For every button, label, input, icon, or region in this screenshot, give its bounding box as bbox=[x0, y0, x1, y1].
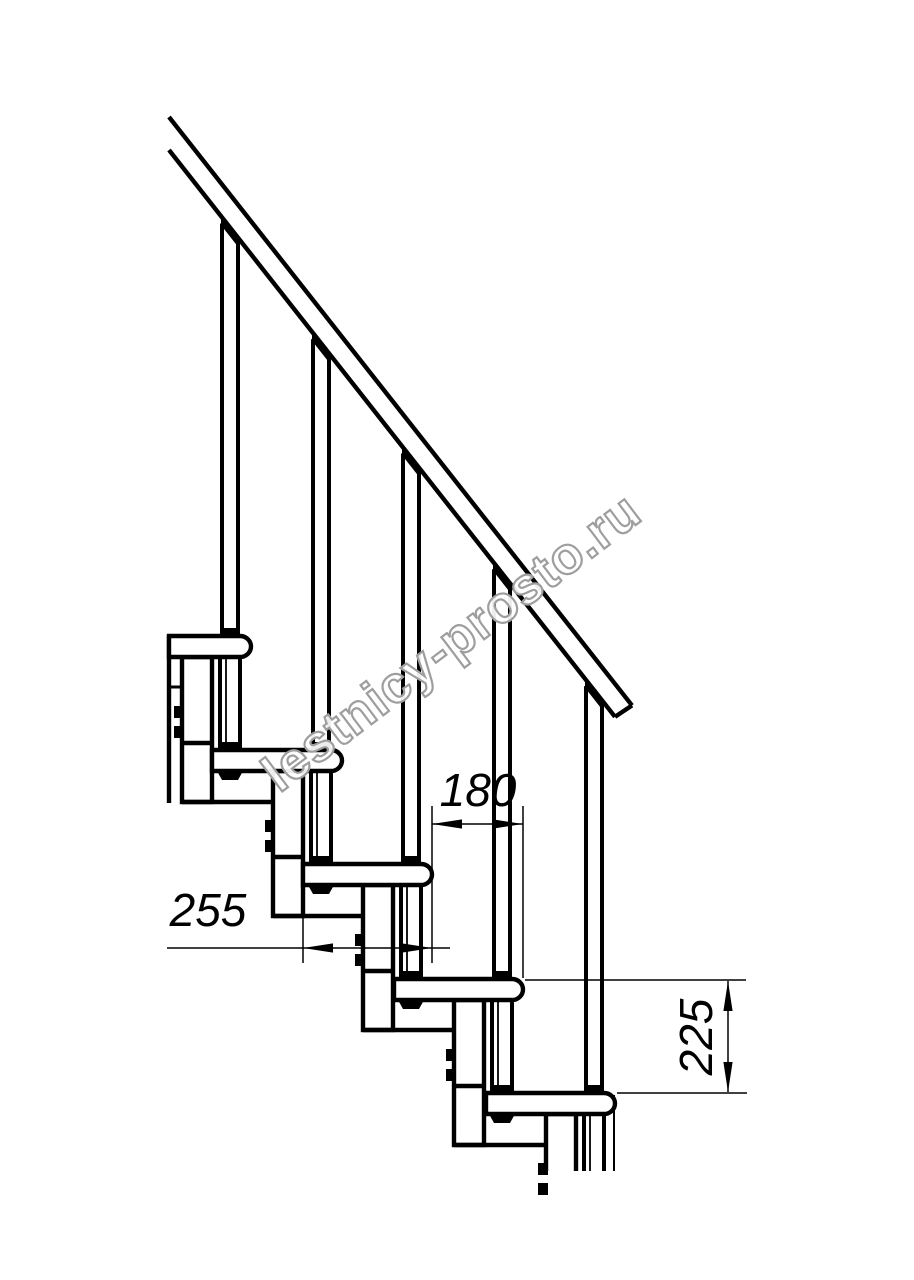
bolt bbox=[174, 726, 184, 738]
bolt bbox=[538, 1163, 548, 1175]
bolt bbox=[538, 1183, 548, 1195]
dim-arrow-down bbox=[723, 1062, 732, 1092]
bolt bbox=[355, 954, 365, 966]
dim-arrow-up bbox=[723, 981, 732, 1011]
rod bbox=[311, 771, 331, 864]
rod-foot bbox=[310, 856, 332, 866]
bolt bbox=[265, 840, 275, 852]
tread bbox=[486, 1093, 615, 1114]
baluster bbox=[222, 226, 238, 636]
tread bbox=[394, 979, 523, 1000]
bolt bbox=[355, 934, 365, 946]
rod-foot bbox=[491, 1085, 513, 1095]
rod-foot bbox=[219, 742, 241, 752]
staircase-drawing: 180255225lestnicy-prosto.ru bbox=[0, 0, 914, 1280]
dimension-label-180: 180 bbox=[440, 764, 517, 816]
baluster bbox=[586, 688, 602, 1093]
baluster-foot bbox=[583, 1085, 605, 1095]
bolt bbox=[446, 1049, 456, 1061]
dim-arrow-left bbox=[432, 819, 462, 828]
module-column bbox=[546, 1114, 576, 1171]
baluster bbox=[313, 341, 329, 750]
baluster-foot bbox=[219, 628, 241, 638]
dimension-label-255: 255 bbox=[169, 884, 247, 936]
rod bbox=[492, 1000, 512, 1093]
tread bbox=[169, 636, 251, 657]
drawing-page: 180255225lestnicy-prosto.ru bbox=[0, 0, 914, 1280]
rod bbox=[220, 657, 240, 750]
dim-arrow-left bbox=[303, 943, 333, 952]
rod-nut bbox=[489, 1114, 515, 1123]
rod bbox=[401, 885, 421, 979]
baluster-foot bbox=[400, 856, 422, 866]
bolt bbox=[265, 820, 275, 832]
rod-nut bbox=[308, 885, 334, 894]
rod-nut bbox=[217, 771, 243, 780]
tread bbox=[303, 864, 432, 885]
baluster-foot bbox=[491, 971, 513, 981]
bolt bbox=[446, 1069, 456, 1081]
rod-nut bbox=[398, 1000, 424, 1009]
rod-foot bbox=[400, 971, 422, 981]
dimension-label-225: 225 bbox=[670, 998, 722, 1076]
module-column bbox=[363, 885, 393, 1030]
module-column bbox=[182, 657, 212, 802]
bolt bbox=[174, 706, 184, 718]
module-column bbox=[454, 1000, 484, 1145]
